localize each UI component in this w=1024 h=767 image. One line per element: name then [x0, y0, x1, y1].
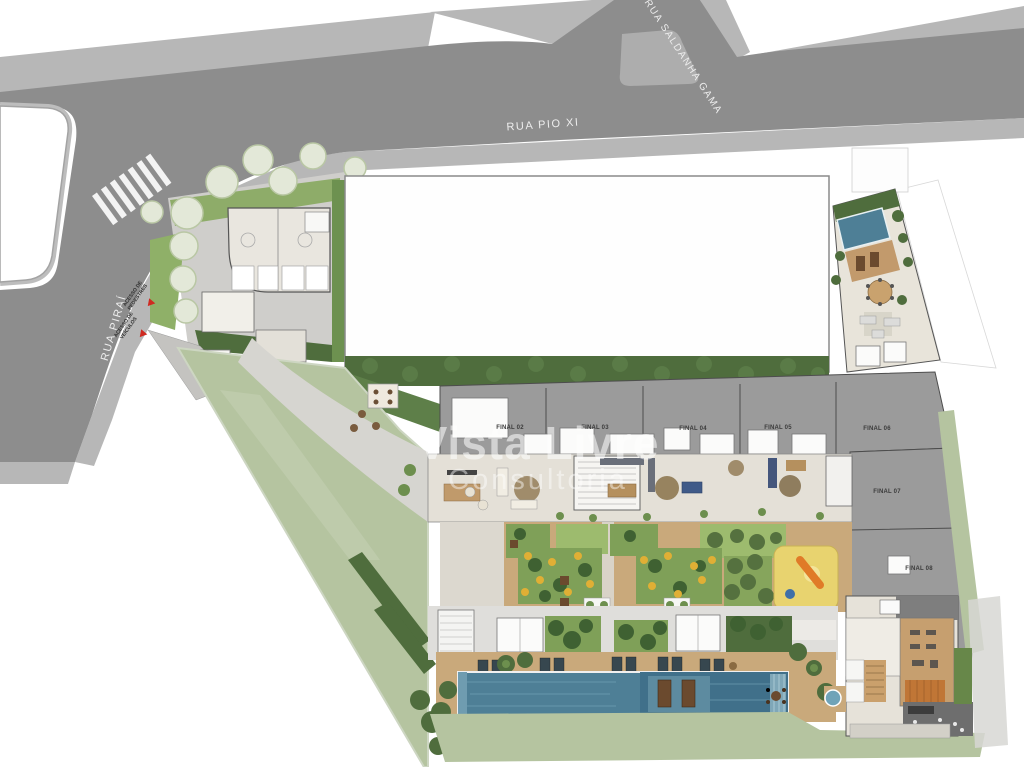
- jacuzzi: [825, 690, 841, 706]
- tower-footprint: [345, 176, 829, 372]
- site-plan-drawing: [0, 0, 1024, 767]
- lap-pool: [458, 672, 788, 716]
- playground: [774, 546, 838, 610]
- traffic-island: [0, 106, 68, 282]
- fitness-pavilion: [824, 596, 973, 738]
- common-area-interior: [428, 454, 852, 522]
- site-plan: RUA PIO XI RUA SALDANHA GAMA RUA PIRAÍ A…: [0, 0, 1024, 767]
- amenity-strip: [428, 606, 838, 660]
